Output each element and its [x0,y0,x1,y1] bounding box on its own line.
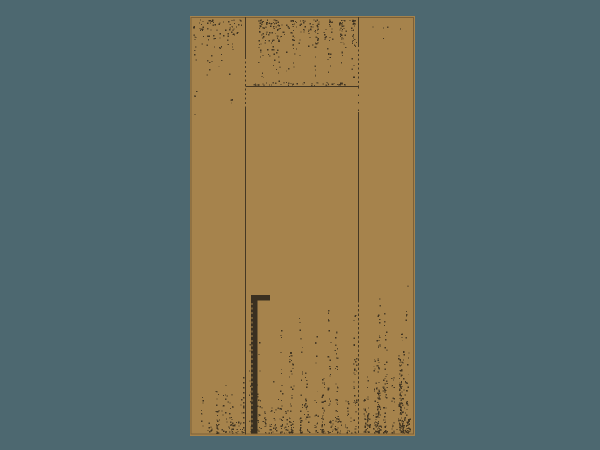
door-illustration-canvas [0,0,600,450]
door[interactable] [190,16,415,436]
scene [0,0,600,450]
door-panel[interactable] [190,16,415,436]
